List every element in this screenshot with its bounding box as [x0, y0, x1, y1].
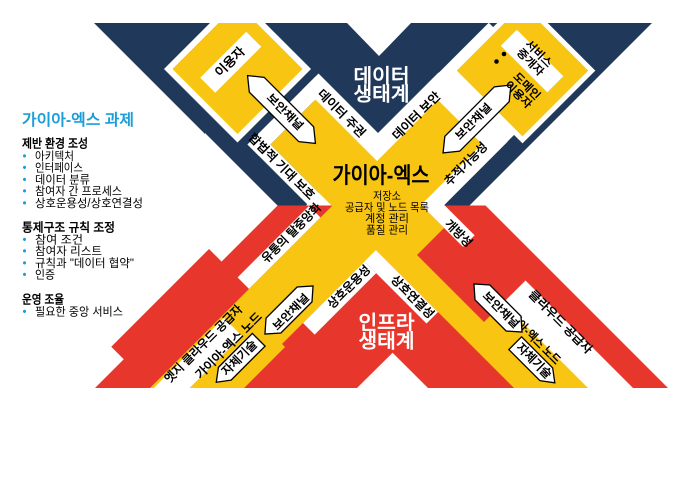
- svg-text:상호운용성/상호연결성: 상호운용성/상호연결성: [35, 197, 143, 210]
- svg-text:참여자 리스트: 참여자 리스트: [35, 245, 102, 258]
- svg-text:공급자 및 노드 목록: 공급자 및 노드 목록: [345, 201, 429, 214]
- svg-text:가이아-엑스 과제: 가이아-엑스 과제: [22, 110, 134, 129]
- svg-text:운영 조율: 운영 조율: [22, 292, 64, 307]
- svg-text:규칙과 "데이터 협약": 규칙과 "데이터 협약": [35, 256, 134, 270]
- svg-text:•: •: [23, 270, 27, 282]
- svg-text:필요한 중앙 서비스: 필요한 중앙 서비스: [35, 306, 123, 319]
- svg-text:데이터 분류: 데이터 분류: [35, 173, 90, 186]
- svg-text:인터페이스: 인터페이스: [35, 162, 83, 175]
- svg-text:품질 관리: 품질 관리: [366, 223, 408, 236]
- svg-text:저장소: 저장소: [373, 190, 401, 203]
- svg-text:참여자 간 프로세스: 참여자 간 프로세스: [35, 185, 122, 198]
- svg-text:가이아-엑스: 가이아-엑스: [333, 163, 430, 188]
- svg-text:아키텍처: 아키텍처: [35, 150, 74, 163]
- svg-text:통제구조 규칙 조정: 통제구조 규칙 조정: [22, 220, 115, 235]
- svg-text:•: •: [23, 307, 27, 319]
- svg-text:생태계: 생태계: [354, 84, 410, 106]
- svg-text:제반 환경 조성: 제반 환경 조성: [22, 136, 88, 151]
- svg-text:•: •: [23, 151, 27, 163]
- svg-text:계정 관리: 계정 관리: [365, 212, 409, 225]
- svg-text:•: •: [23, 246, 27, 258]
- svg-text:•: •: [23, 186, 27, 198]
- svg-text:•: •: [23, 163, 27, 175]
- svg-text:인증: 인증: [35, 269, 55, 282]
- svg-text:참여 조건: 참여 조건: [35, 234, 83, 247]
- svg-text:•: •: [23, 174, 27, 186]
- svg-text:•: •: [23, 235, 27, 247]
- svg-text:•: •: [23, 258, 27, 270]
- svg-text:•: •: [23, 198, 27, 210]
- svg-text:생태계: 생태계: [359, 331, 415, 353]
